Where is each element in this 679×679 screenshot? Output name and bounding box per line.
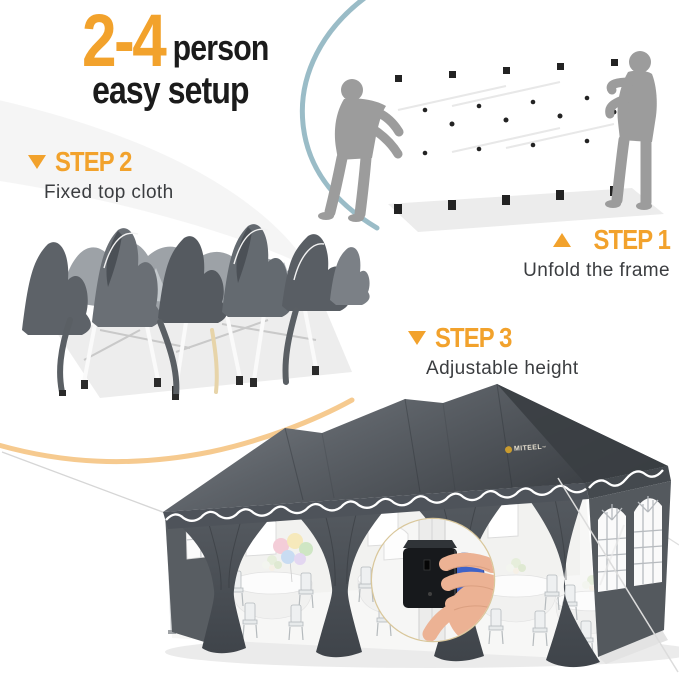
tent-end-wall <box>589 481 671 657</box>
heading-highlight: 2-4 <box>82 6 164 76</box>
step1-scene-frame-unfolding <box>318 51 664 232</box>
step1-block: STEP 1 Unfold the frame <box>498 224 670 282</box>
step2-scene-folded-canopy <box>22 224 370 400</box>
step1-caption: Unfold the frame <box>523 260 670 282</box>
brand-logo-mark-icon <box>505 446 512 453</box>
heading-line2: easy setup <box>92 70 268 113</box>
brand-trademark: ™ <box>542 445 546 450</box>
heading: 2-4 person easy setup <box>82 6 268 113</box>
step1-label: STEP 1 <box>594 224 670 256</box>
step2-block: STEP 2 Fixed top cloth <box>28 146 174 204</box>
step2-label: STEP 2 <box>55 146 131 178</box>
step3-block: STEP 3 Adjustable height <box>408 322 579 380</box>
product-setup-infographic: 2-4 person easy setup STEP 2 Fixed top c… <box>0 0 679 679</box>
step3-caption: Adjustable height <box>426 358 579 380</box>
step3-scene-assembled-tent <box>2 384 679 672</box>
step2-caption: Fixed top cloth <box>44 182 174 204</box>
person-silhouette-left <box>318 79 399 222</box>
triangle-down-icon <box>28 155 46 169</box>
triangle-down-icon <box>408 331 426 345</box>
step3-label: STEP 3 <box>435 322 511 354</box>
triangle-up-icon <box>553 233 571 247</box>
heading-suffix: person <box>173 27 269 69</box>
